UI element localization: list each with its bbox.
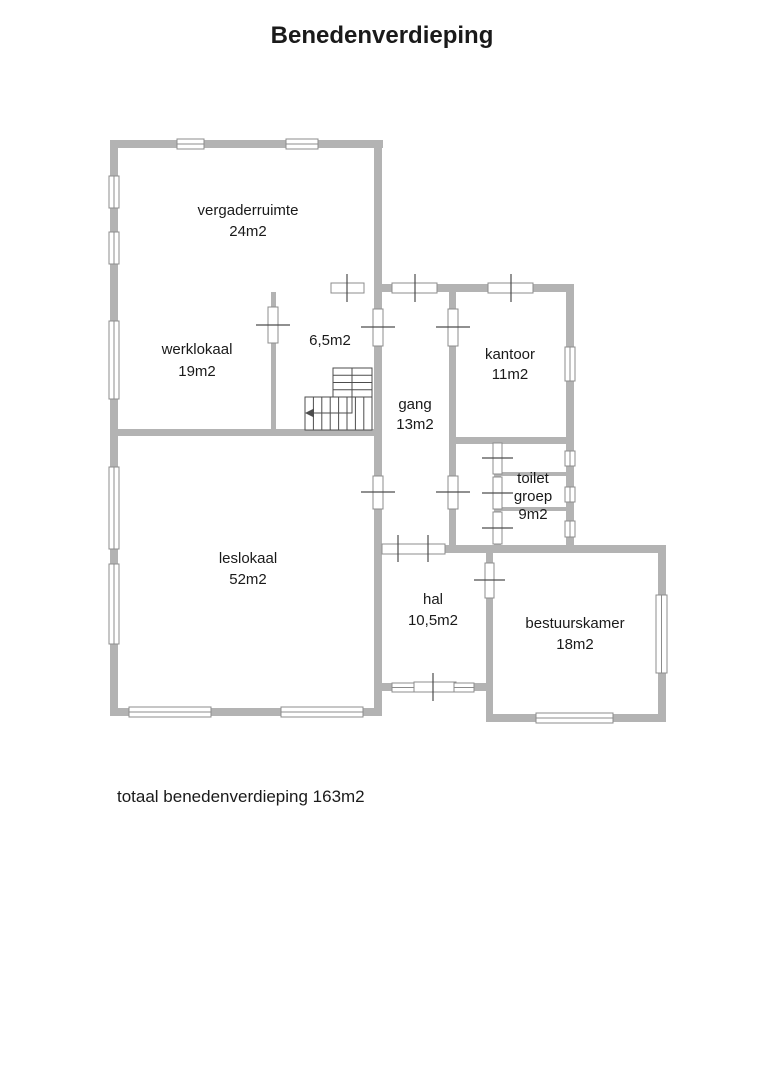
door-gang-kantoor bbox=[436, 309, 470, 346]
window-vergaderruimte-north-2 bbox=[286, 139, 318, 149]
window-vergaderruimte-west-1 bbox=[109, 176, 119, 208]
window-leslokaal-south-2 bbox=[281, 707, 363, 717]
door-exterior-gang-north bbox=[392, 274, 437, 302]
window-toilet-east-1 bbox=[565, 451, 575, 466]
door-trapkamer-gang bbox=[361, 309, 395, 346]
entrance-door-hal bbox=[414, 673, 456, 701]
window-bestuurskamer-south bbox=[536, 713, 613, 723]
door-toilet-stall-3 bbox=[482, 512, 513, 544]
double-door-gang-hal bbox=[382, 535, 445, 562]
entrance-sidelight-left bbox=[392, 683, 414, 692]
page-title: Benedenverdieping bbox=[271, 22, 494, 49]
entrance-sidelight-right bbox=[454, 683, 474, 692]
label-leslokaal-area: 52m2 bbox=[229, 571, 267, 588]
window-werklokaal-west bbox=[109, 321, 119, 399]
door-werklokaal-trapkamer bbox=[256, 307, 290, 343]
label-kantoor-area: 11m2 bbox=[492, 366, 528, 383]
door-toilet-stall-2 bbox=[482, 477, 513, 509]
window-leslokaal-west-2 bbox=[109, 564, 119, 644]
label-werklokaal-name: werklokaal bbox=[161, 341, 233, 358]
label-gang-area: 13m2 bbox=[396, 416, 434, 433]
window-kantoor-east bbox=[565, 347, 575, 381]
window-leslokaal-west-1 bbox=[109, 467, 119, 549]
door-vergaderruimte-trapkamer bbox=[331, 274, 364, 302]
label-kantoor-name: kantoor bbox=[485, 346, 535, 363]
window-toilet-east-2 bbox=[565, 487, 575, 502]
window-bestuurskamer-east bbox=[656, 595, 667, 673]
label-werklokaal-area: 19m2 bbox=[178, 363, 216, 380]
door-hal-bestuurskamer bbox=[474, 563, 505, 598]
wall-spine-center-vertical bbox=[374, 140, 382, 716]
door-toilet-stall-1 bbox=[482, 443, 513, 474]
label-gang-name: gang bbox=[398, 396, 431, 413]
wall-exterior-north bbox=[110, 140, 383, 148]
floorplan-page: Benedenverdieping vergaderruimte 24m2 we… bbox=[0, 0, 764, 1080]
label-leslokaal-name: leslokaal bbox=[219, 550, 277, 567]
wall-kantoor-toilet bbox=[449, 437, 574, 444]
label-vergaderruimte-name: vergaderruimte bbox=[198, 202, 299, 219]
label-trapkamer-area: 6,5m2 bbox=[309, 332, 351, 349]
window-vergaderruimte-west-2 bbox=[109, 232, 119, 264]
label-bestuurskamer-area: 18m2 bbox=[556, 636, 594, 653]
door-gang-leslokaal bbox=[361, 476, 395, 509]
label-vergaderruimte-area: 24m2 bbox=[229, 223, 267, 240]
total-area-label: totaal benedenverdieping 163m2 bbox=[117, 787, 365, 806]
door-exterior-kantoor-north bbox=[488, 274, 533, 302]
label-hal-name: hal bbox=[423, 591, 443, 608]
window-vergaderruimte-north-1 bbox=[177, 139, 204, 149]
window-leslokaal-south-1 bbox=[129, 707, 211, 717]
label-toilet-line1: toilet bbox=[517, 470, 550, 487]
label-toilet-line2: groep bbox=[514, 488, 552, 505]
staircase bbox=[305, 368, 372, 430]
door-gang-toiletgroep bbox=[436, 476, 470, 509]
walls-layer bbox=[110, 140, 666, 722]
window-toilet-east-3 bbox=[565, 521, 575, 537]
label-toilet-area: 9m2 bbox=[518, 506, 547, 523]
label-hal-area: 10,5m2 bbox=[408, 612, 458, 629]
wall-exterior-east-upper bbox=[566, 284, 574, 553]
label-bestuurskamer-name: bestuurskamer bbox=[525, 615, 624, 632]
floorplan-canvas: Benedenverdieping vergaderruimte 24m2 we… bbox=[0, 0, 764, 1080]
